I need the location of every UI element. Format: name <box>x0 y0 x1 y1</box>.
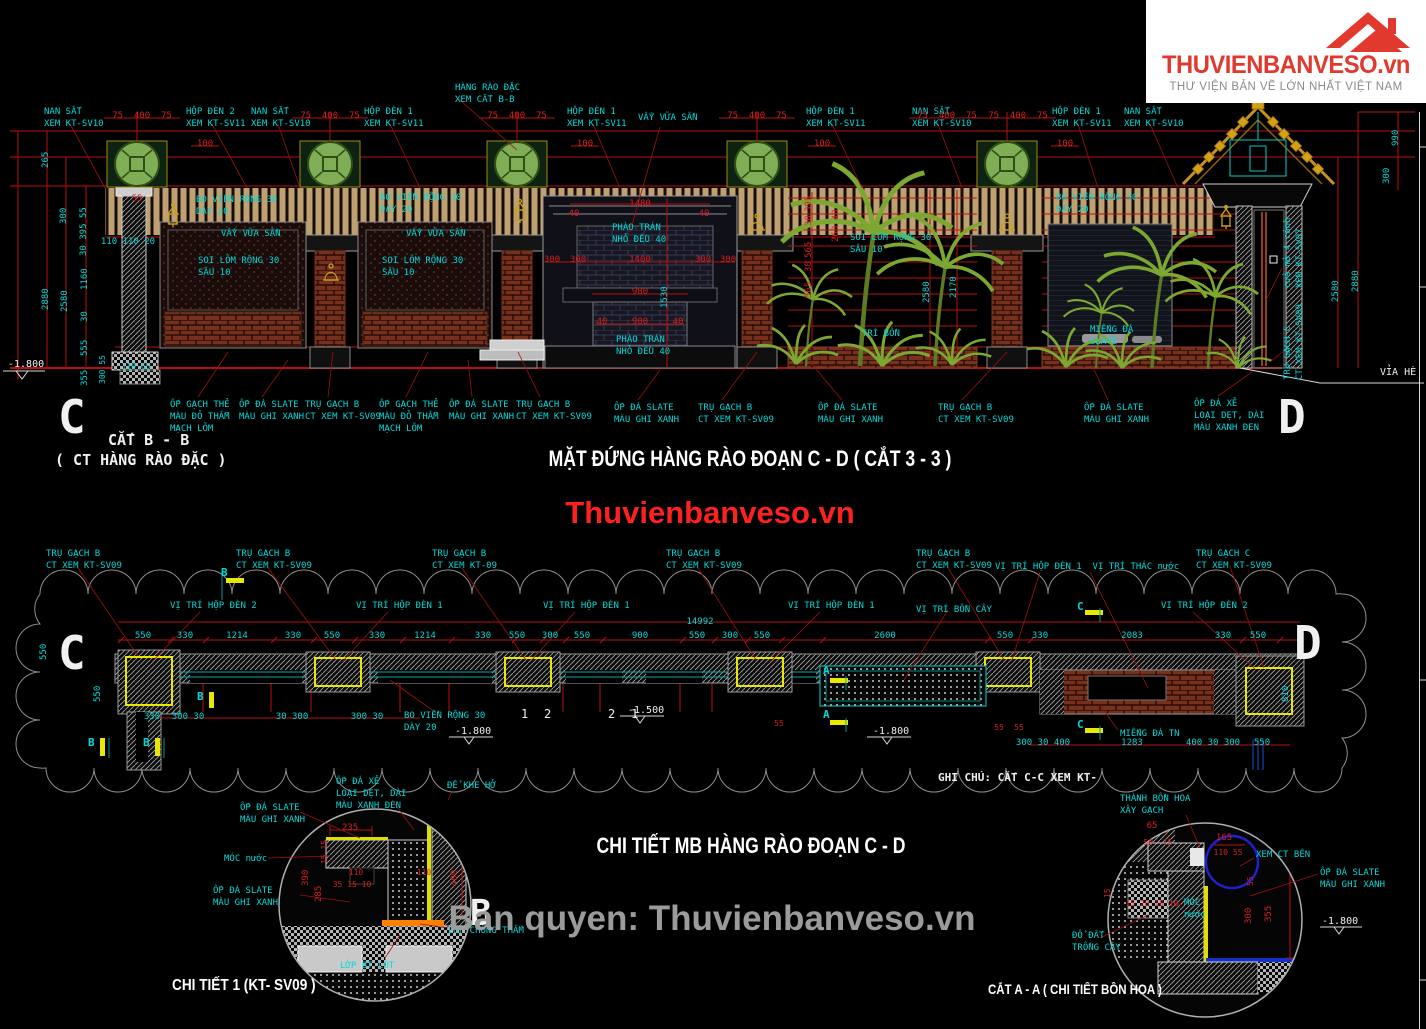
watermark-bottom: Ban quyen: Thuvienbanveso.vn <box>448 899 975 939</box>
detail2-title: CẮT A - A ( CHI TIẾT BỒN HOA ) <box>988 982 1162 997</box>
elevation-view <box>3 96 1424 400</box>
detail1-title: CHI TIẾT 1 (KT- SV09 ) <box>172 977 316 995</box>
logo-brand-text: THUVIENBANVESO.vn <box>1153 51 1419 80</box>
detail-1-view <box>268 788 473 1002</box>
gate-post <box>1286 206 1302 368</box>
sidewalk-line <box>1240 368 1424 383</box>
plan-view <box>16 566 1366 792</box>
gate-door <box>1254 210 1284 368</box>
logo: THUVIENBANVESO.vn THƯ VIỆN BẢN VẼ LỚN NH… <box>1146 0 1426 103</box>
plan-planter-box <box>820 666 986 706</box>
fence-panel-2 <box>358 222 492 348</box>
sheet-edge-ruler <box>1419 112 1426 1029</box>
fence-panel-1 <box>160 222 306 348</box>
watermark-center: Thuvienbanveso.vn <box>565 495 854 531</box>
stone-slab <box>1132 336 1162 343</box>
cad-sheet: NAN SẮT XEM KT-SV10HỘP ĐÈN 2 XEM KT-SV11… <box>0 0 1426 1029</box>
plan-title: CHI TIẾT MB HÀNG RÀO ĐOẠN C - D <box>597 833 906 859</box>
elevation-title: MẶT ĐỨNG HÀNG RÀO ĐOẠN C - D ( CẮT 3 - 3… <box>549 446 952 472</box>
logo-tagline: THƯ VIỆN BẢN VẼ LỚN NHẤT VIỆT NAM <box>1146 81 1426 93</box>
